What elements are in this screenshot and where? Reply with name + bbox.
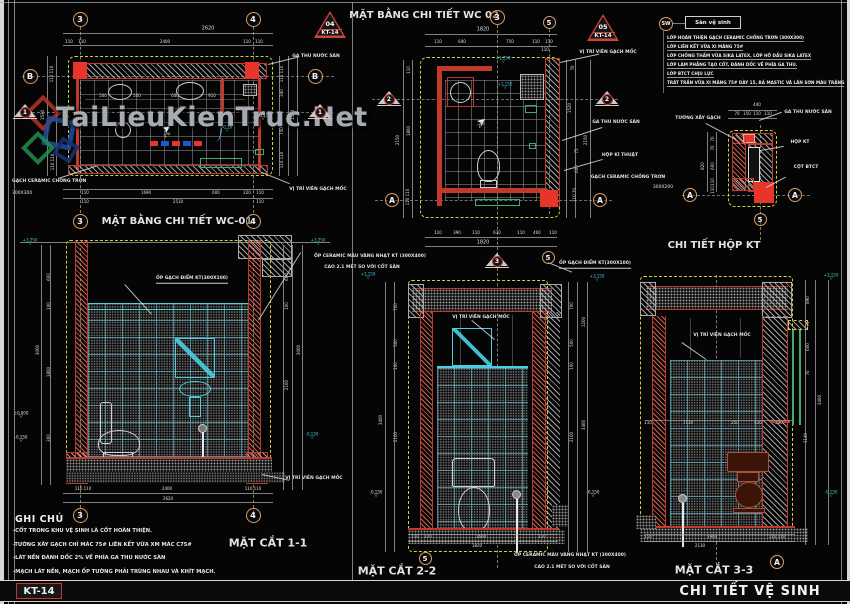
grid-bubble-4: 4 [246, 214, 261, 229]
sheet-title-box: CHI TIẾT VỆ SINH [660, 582, 840, 600]
grid-bubble-5: 5 [542, 251, 555, 264]
grid-bubble-A: A [788, 188, 802, 202]
sheet-title: CHI TIẾT VỆ SINH [679, 584, 820, 599]
section-marker-number: 1 [315, 107, 326, 118]
section-marker-3: 3 [485, 253, 509, 269]
grid-bubble-B: B [23, 69, 38, 84]
grid-bubble-5: 5 [543, 16, 556, 29]
grid-bubble-3: 3 [73, 508, 88, 523]
sheet-ref-sheet-code: KT-14 [314, 30, 346, 36]
grid-bubble-A: A [593, 193, 607, 207]
grid-bubble-4: 4 [246, 508, 261, 523]
sheet-code: KT-14 [23, 586, 54, 597]
sheet-ref-05: 05KT-14 [587, 14, 619, 41]
grid-bubble-5: 5 [754, 213, 767, 226]
grid-bubble-5: 5 [419, 552, 432, 565]
grid-bubble-B: B [308, 69, 323, 84]
section-marker-1: 1 [13, 104, 37, 120]
grid-bubble-3: 3 [73, 12, 88, 27]
section-marker-2: 2 [595, 91, 619, 107]
section-marker-line [377, 105, 401, 106]
cad-sheet: ➤ ➤ [0, 0, 850, 604]
section-marker-line [13, 118, 37, 119]
titlebar: KT-14 CHI TIẾT VỆ SINH [0, 581, 850, 601]
section-marker-number: 1 [20, 107, 31, 118]
grid-bubble-A: A [385, 193, 399, 207]
grid-bubble-4: 4 [246, 12, 261, 27]
grid-bubble-A: A [683, 188, 697, 202]
grid-bubble-A: A [770, 555, 784, 569]
bubble-layer: 34BB341104KT-143505KT-1422AAAA534355A [0, 0, 850, 604]
section-marker-1: 1 [308, 104, 332, 120]
section-marker-number: 3 [492, 256, 503, 267]
section-marker-2: 2 [377, 91, 401, 107]
grid-bubble-3: 3 [73, 214, 88, 229]
sheet-ref-number: 05 [587, 23, 619, 31]
sheet-ref-04: 04KT-14 [314, 11, 346, 38]
section-marker-number: 2 [602, 94, 613, 105]
section-marker-line [595, 105, 619, 106]
sheet-ref-sheet-code: KT-14 [587, 33, 619, 39]
titlebar-line-bottom [0, 601, 850, 602]
section-marker-number: 2 [384, 94, 395, 105]
sheet-ref-number: 04 [314, 20, 346, 28]
section-marker-line [308, 118, 332, 119]
sheet-code-box: KT-14 [16, 583, 62, 599]
section-marker-line [485, 267, 509, 268]
grid-bubble-3: 3 [490, 10, 505, 25]
